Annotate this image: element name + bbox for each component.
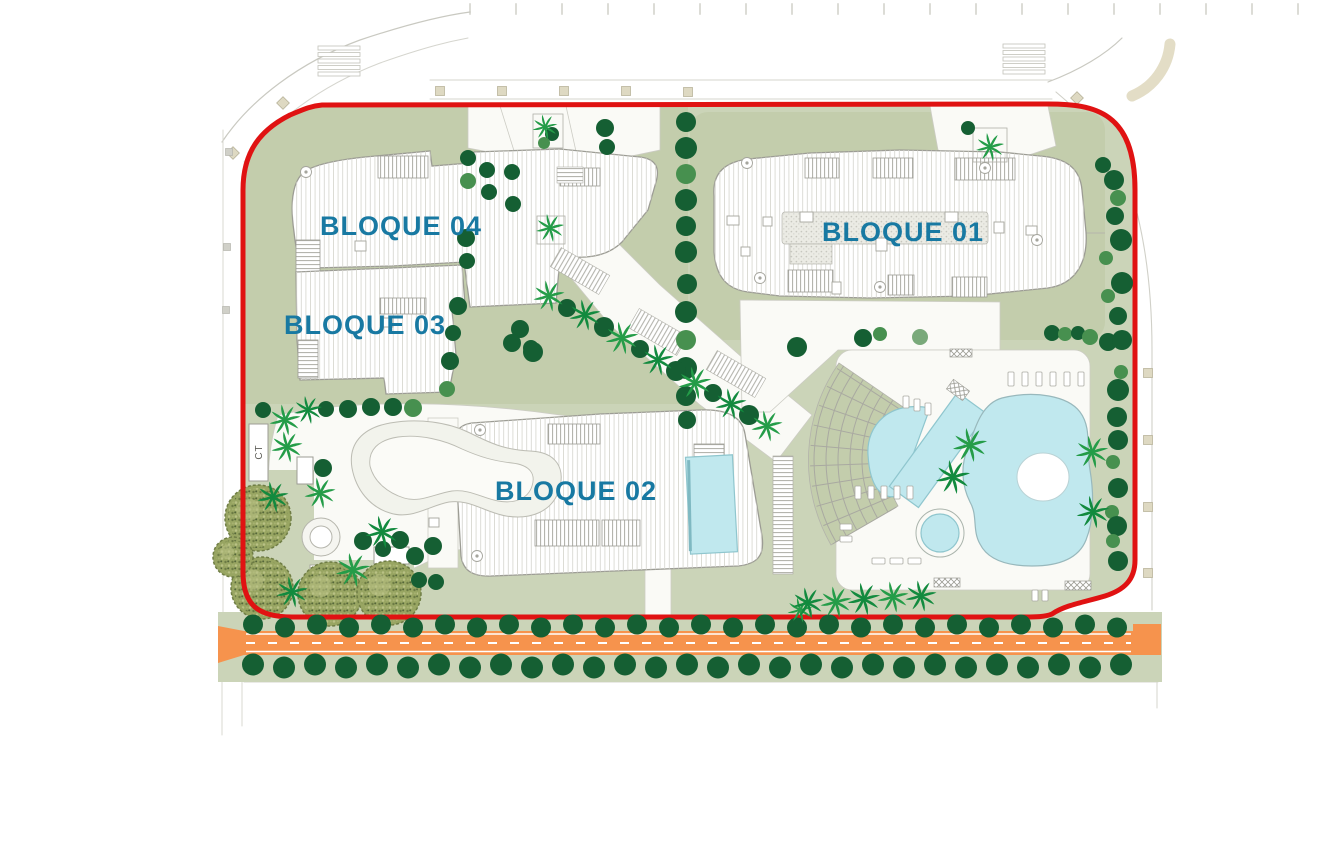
street-tree — [1043, 618, 1063, 638]
street-tree — [371, 615, 391, 635]
round-tree — [676, 164, 696, 184]
street-tree — [691, 615, 711, 635]
street-tree — [627, 615, 647, 635]
round-tree — [479, 162, 495, 178]
street-tree — [563, 615, 583, 635]
bloque-02-roof-pool — [685, 455, 737, 554]
round-tree — [1099, 251, 1113, 265]
round-tree — [384, 398, 402, 416]
street-tree — [1017, 657, 1039, 679]
round-tree — [631, 340, 649, 358]
street-tree — [397, 657, 419, 679]
street-tree — [947, 615, 967, 635]
round-tree — [459, 253, 475, 269]
street-tree — [955, 657, 977, 679]
round-tree — [675, 241, 697, 263]
round-tree — [375, 541, 391, 557]
round-tree — [1108, 551, 1128, 571]
round-tree — [1109, 307, 1127, 325]
round-tree — [1108, 478, 1128, 498]
street-tree — [1011, 615, 1031, 635]
street-tree — [831, 657, 853, 679]
round-tree — [339, 400, 357, 418]
street-tree — [490, 654, 512, 676]
street-tree — [499, 615, 519, 635]
street-tree — [707, 657, 729, 679]
round-tree — [460, 150, 476, 166]
round-tree — [873, 327, 887, 341]
street-tree — [755, 615, 775, 635]
street-tree — [531, 618, 551, 638]
round-tree — [318, 401, 334, 417]
bloque-03-label: BLOQUE 03 — [284, 310, 446, 340]
round-tree — [1110, 229, 1132, 251]
bloque-02-label: BLOQUE 02 — [495, 476, 657, 506]
round-tree — [676, 112, 696, 132]
round-tree — [675, 137, 697, 159]
street-tree — [467, 618, 487, 638]
round-tree — [428, 574, 444, 590]
round-tree — [255, 402, 271, 418]
round-tree — [961, 121, 975, 135]
round-tree — [1107, 407, 1127, 427]
round-tree — [449, 297, 467, 315]
round-tree — [675, 301, 697, 323]
round-tree — [675, 189, 697, 211]
street-tree — [800, 654, 822, 676]
street-tree — [738, 654, 760, 676]
street-tree — [659, 618, 679, 638]
street-tree — [304, 654, 326, 676]
round-tree — [404, 399, 422, 417]
round-tree — [538, 137, 550, 149]
round-tree — [445, 325, 461, 341]
round-tree — [504, 164, 520, 180]
round-tree — [678, 411, 696, 429]
round-tree — [676, 330, 696, 350]
round-tree — [854, 329, 872, 347]
street-tree — [521, 657, 543, 679]
round-tree — [1107, 379, 1129, 401]
street-tree — [819, 615, 839, 635]
round-tree — [406, 547, 424, 565]
street-tree — [787, 618, 807, 638]
street-tree — [915, 618, 935, 638]
round-tree — [1108, 430, 1128, 450]
round-tree — [1104, 170, 1124, 190]
round-tree — [594, 317, 614, 337]
street-tree — [851, 618, 871, 638]
round-tree — [676, 216, 696, 236]
street-tree — [1048, 654, 1070, 676]
round-tree — [666, 361, 686, 381]
street-tree — [335, 657, 357, 679]
ct-label: CT — [254, 444, 265, 459]
street-tree — [986, 654, 1008, 676]
street-tree — [924, 654, 946, 676]
street-tree — [614, 654, 636, 676]
street-tree — [243, 615, 263, 635]
round-tree — [439, 381, 455, 397]
round-tree — [503, 334, 521, 352]
round-tree — [912, 329, 928, 345]
street-tree — [339, 618, 359, 638]
street-tree — [403, 618, 423, 638]
canopy-tree — [213, 537, 253, 577]
street-tree — [275, 618, 295, 638]
street-tree — [583, 657, 605, 679]
round-tree — [481, 184, 497, 200]
street-tree — [366, 654, 388, 676]
round-tree — [1111, 272, 1133, 294]
round-tree — [362, 398, 380, 416]
bloque-01-label: BLOQUE 01 — [822, 217, 984, 247]
round-tree — [1110, 190, 1126, 206]
round-tree — [739, 405, 759, 425]
round-tree — [505, 196, 521, 212]
street-tree — [1075, 615, 1095, 635]
round-tree — [1058, 327, 1072, 341]
street-tree — [862, 654, 884, 676]
street-tree — [1079, 657, 1101, 679]
street-tree — [273, 657, 295, 679]
site-plan: BLOQUE 04 BLOQUE 03 BLOQUE 01 BLOQUE 02 … — [0, 0, 1320, 859]
street-tree — [242, 654, 264, 676]
street-tree — [883, 615, 903, 635]
street-tree — [1110, 654, 1132, 676]
street-tree — [1107, 618, 1127, 638]
street-tree — [645, 657, 667, 679]
round-tree — [314, 459, 332, 477]
round-tree — [787, 337, 807, 357]
street-tree — [595, 618, 615, 638]
round-tree — [1106, 455, 1120, 469]
street-tree — [435, 615, 455, 635]
site-plan-drawing: BLOQUE 04 BLOQUE 03 BLOQUE 01 BLOQUE 02 … — [0, 0, 1320, 859]
bloque-04-label: BLOQUE 04 — [320, 211, 482, 241]
round-pool — [921, 514, 959, 552]
round-tree — [523, 342, 543, 362]
street-tree — [979, 618, 999, 638]
street-tree — [769, 657, 791, 679]
round-tree — [596, 119, 614, 137]
ramp — [773, 456, 793, 574]
round-tree — [1107, 516, 1127, 536]
street-tree — [723, 618, 743, 638]
street-tree — [552, 654, 574, 676]
round-tree — [460, 173, 476, 189]
round-tree — [1106, 534, 1120, 548]
street-tree — [676, 654, 698, 676]
round-tree — [1044, 325, 1060, 341]
round-tree — [411, 572, 427, 588]
round-tree — [1101, 289, 1115, 303]
round-tree — [441, 352, 459, 370]
round-tree — [1112, 330, 1132, 350]
round-tree — [1095, 157, 1111, 173]
round-tree — [599, 139, 615, 155]
round-tree — [1082, 329, 1098, 345]
round-tree — [704, 384, 722, 402]
round-tree — [1106, 207, 1124, 225]
street-tree — [459, 657, 481, 679]
round-tree — [424, 537, 442, 555]
street-tree — [428, 654, 450, 676]
round-tree — [391, 531, 409, 549]
pool-island — [1017, 453, 1069, 501]
fountain — [310, 526, 332, 548]
round-tree — [677, 274, 697, 294]
round-tree — [1114, 365, 1128, 379]
street-tree — [893, 657, 915, 679]
street-tree — [307, 615, 327, 635]
